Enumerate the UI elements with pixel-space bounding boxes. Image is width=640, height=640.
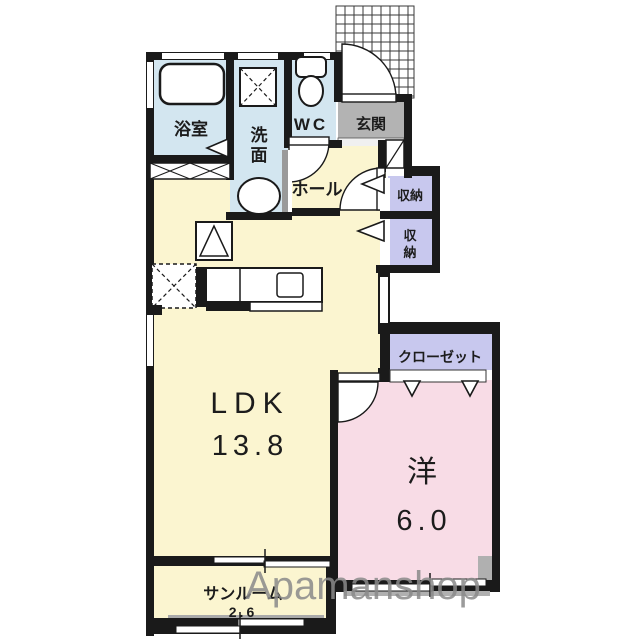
window-ldk-right bbox=[380, 277, 388, 323]
label-hall: ホール bbox=[292, 180, 343, 199]
label-closet: クローゼット bbox=[398, 349, 482, 365]
label-storage-lower-1: 収 bbox=[403, 228, 417, 243]
label-ldk: LDK bbox=[210, 387, 289, 420]
label-washroom-1: 洗 bbox=[251, 125, 268, 145]
sink-icon bbox=[238, 178, 280, 214]
refrigerator-icon bbox=[196, 222, 232, 260]
label-storage-lower-2: 納 bbox=[403, 245, 416, 260]
shoe-cabinet-icon bbox=[386, 140, 404, 168]
bathroom-counter-icon bbox=[150, 163, 230, 179]
floorplan-canvas: 浴室 洗 面 WC 玄関 ホール 収納 収 納 クローゼット LDK 13.8 … bbox=[0, 0, 640, 640]
laundry-space-icon bbox=[152, 264, 196, 308]
floorplan-drawing: 浴室 洗 面 WC 玄関 ホール 収納 収 納 クローゼット LDK 13.8 … bbox=[0, 0, 640, 640]
window-left-bathroom bbox=[147, 62, 153, 108]
label-storage-upper: 収納 bbox=[397, 188, 423, 203]
label-western-size: 6.0 bbox=[396, 505, 451, 537]
window-left-ldk bbox=[147, 314, 153, 366]
watermark: Apamanshop bbox=[245, 564, 481, 608]
washing-machine-icon bbox=[240, 68, 276, 106]
window-bathroom-top bbox=[162, 53, 224, 59]
washroom-sliding-door bbox=[282, 150, 292, 212]
label-genkan: 玄関 bbox=[356, 115, 386, 133]
label-bathroom: 浴室 bbox=[174, 119, 208, 139]
bathtub-icon bbox=[160, 64, 224, 104]
label-wc: WC bbox=[294, 115, 328, 134]
window-washroom-top bbox=[238, 53, 278, 59]
label-ldk-size: 13.8 bbox=[212, 430, 288, 462]
label-washroom-2: 面 bbox=[251, 146, 268, 165]
label-western: 洋 bbox=[407, 456, 437, 489]
